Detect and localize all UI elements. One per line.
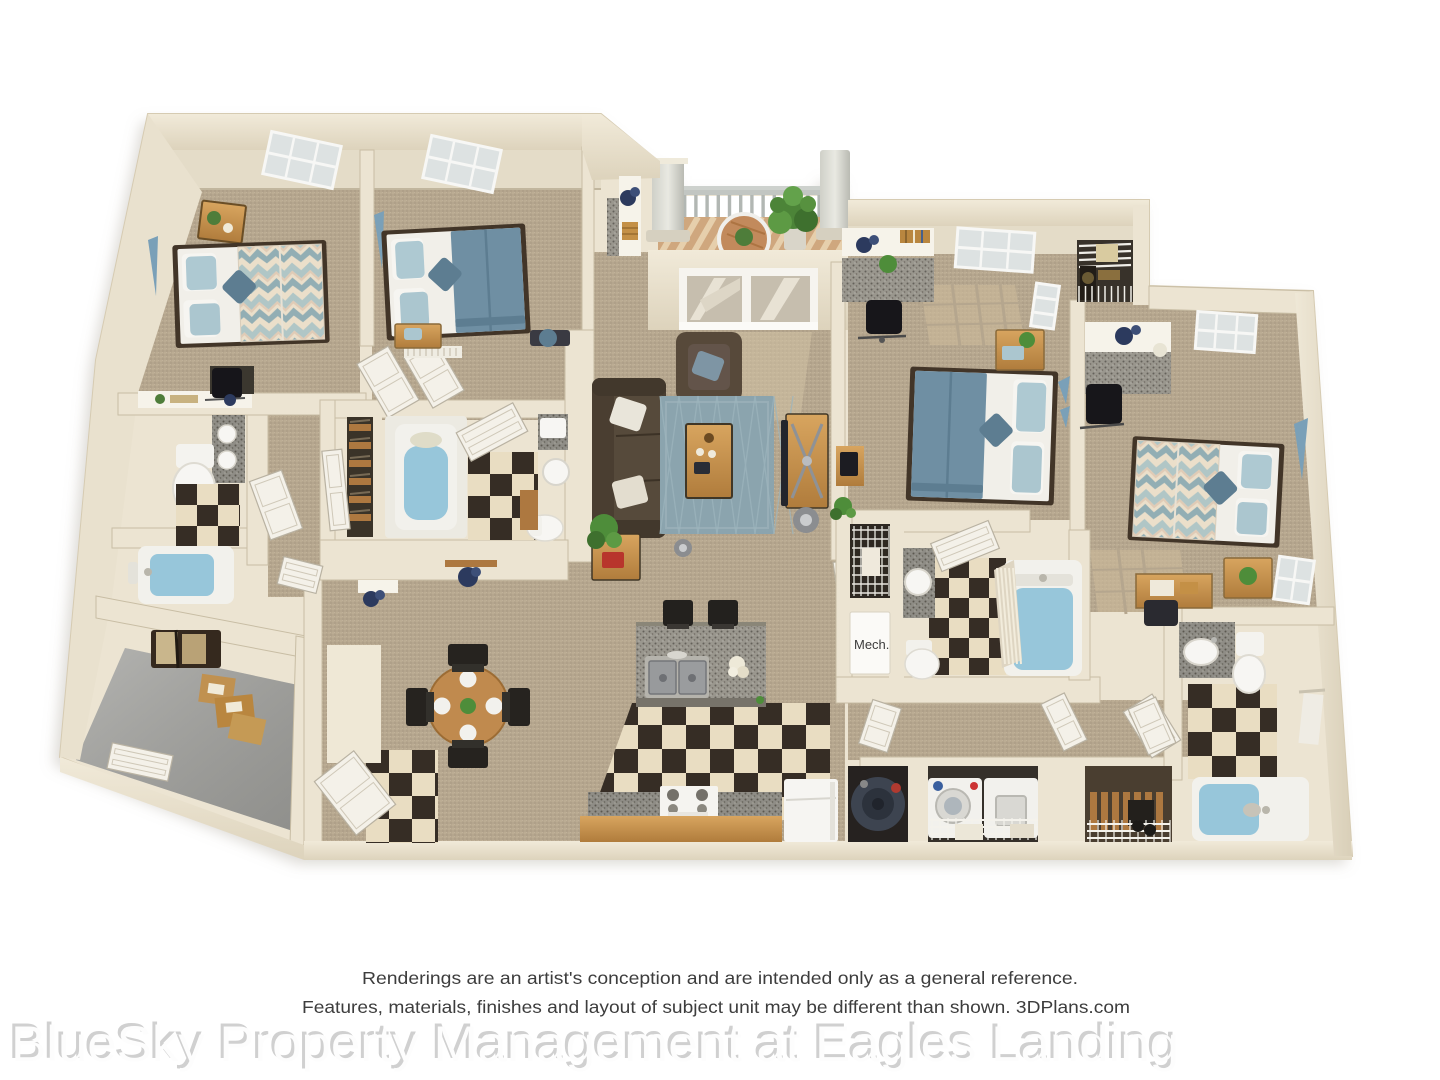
svg-text:Mech.: Mech.	[854, 637, 889, 652]
svg-text:BlueSky Property Management at: BlueSky Property Management at Eagles La…	[11, 1016, 1179, 1072]
svg-text:Renderings are an artist's con: Renderings are an artist's conception an…	[362, 968, 1078, 988]
